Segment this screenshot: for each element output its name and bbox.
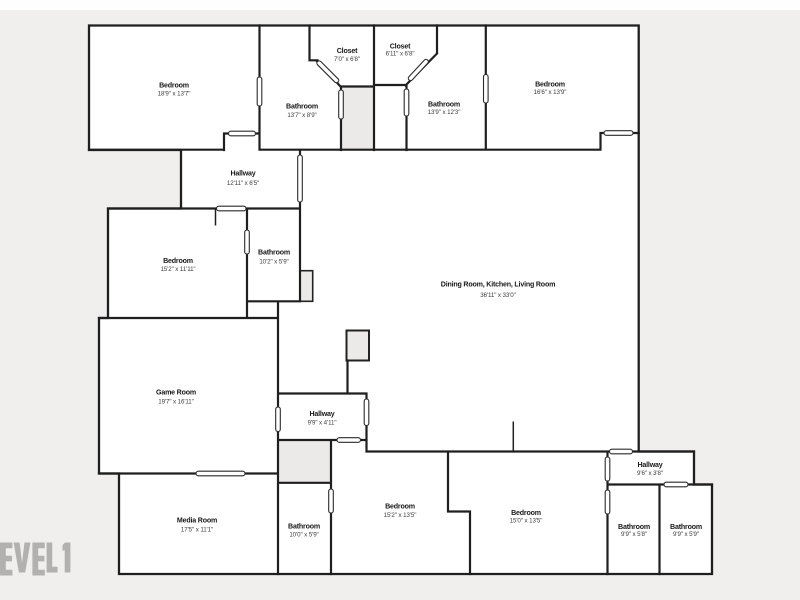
svg-text:15'2" x 13'5": 15'2" x 13'5"	[384, 512, 417, 519]
svg-text:17'5" x 11'1": 17'5" x 11'1"	[181, 527, 213, 534]
svg-text:19'7" x 16'11": 19'7" x 16'11"	[158, 399, 194, 406]
svg-text:Hallway: Hallway	[309, 410, 334, 418]
svg-text:13'7" x 8'9": 13'7" x 8'9"	[287, 112, 316, 119]
svg-text:36'11" x 33'0": 36'11" x 33'0"	[480, 292, 516, 299]
svg-text:18'9" x 13'7": 18'9" x 13'7"	[158, 91, 191, 98]
svg-text:9'6" x 3'8": 9'6" x 3'8"	[637, 470, 663, 477]
svg-text:10'2" x 5'9": 10'2" x 5'9"	[259, 259, 288, 266]
svg-text:Bathroom: Bathroom	[428, 101, 460, 109]
svg-text:12'11" x 6'5": 12'11" x 6'5"	[227, 180, 259, 187]
svg-text:9'9" x 5'9": 9'9" x 5'9"	[673, 531, 699, 538]
svg-text:15'0" x 13'5": 15'0" x 13'5"	[510, 518, 543, 525]
svg-text:Bedroom: Bedroom	[511, 509, 541, 517]
svg-text:9'9" x 5'8": 9'9" x 5'8"	[621, 531, 647, 538]
svg-text:Bathroom: Bathroom	[670, 523, 702, 531]
svg-text:9'9" x 4'11": 9'9" x 4'11"	[308, 420, 337, 427]
svg-text:Closet: Closet	[337, 47, 358, 55]
svg-text:Hallway: Hallway	[230, 170, 255, 178]
svg-text:Hallway: Hallway	[637, 461, 662, 469]
svg-text:6'11" x 6'8": 6'11" x 6'8"	[386, 51, 415, 58]
svg-text:Dining Room, Kitchen, Living R: Dining Room, Kitchen, Living Room	[441, 281, 555, 289]
svg-text:Media Room: Media Room	[177, 517, 217, 525]
svg-text:13'9" x 12'3": 13'9" x 12'3"	[428, 109, 461, 116]
svg-text:7'0" x 6'8": 7'0" x 6'8"	[334, 56, 360, 63]
svg-text:10'0" x 5'9": 10'0" x 5'9"	[289, 532, 318, 539]
svg-text:Bathroom: Bathroom	[288, 523, 320, 531]
svg-text:16'6" x 13'9": 16'6" x 13'9"	[534, 89, 567, 96]
svg-text:Bedroom: Bedroom	[385, 503, 415, 511]
svg-text:Closet: Closet	[390, 43, 411, 51]
svg-text:Bathroom: Bathroom	[258, 249, 290, 257]
svg-text:Bedroom: Bedroom	[535, 81, 565, 89]
svg-text:Bedroom: Bedroom	[163, 257, 193, 265]
svg-text:Bathroom: Bathroom	[286, 103, 318, 111]
svg-text:15'2" x 11'11": 15'2" x 11'11"	[160, 266, 195, 273]
svg-text:Bedroom: Bedroom	[159, 82, 189, 90]
svg-text:Game Room: Game Room	[156, 389, 196, 397]
svg-text:Bathroom: Bathroom	[618, 523, 650, 531]
